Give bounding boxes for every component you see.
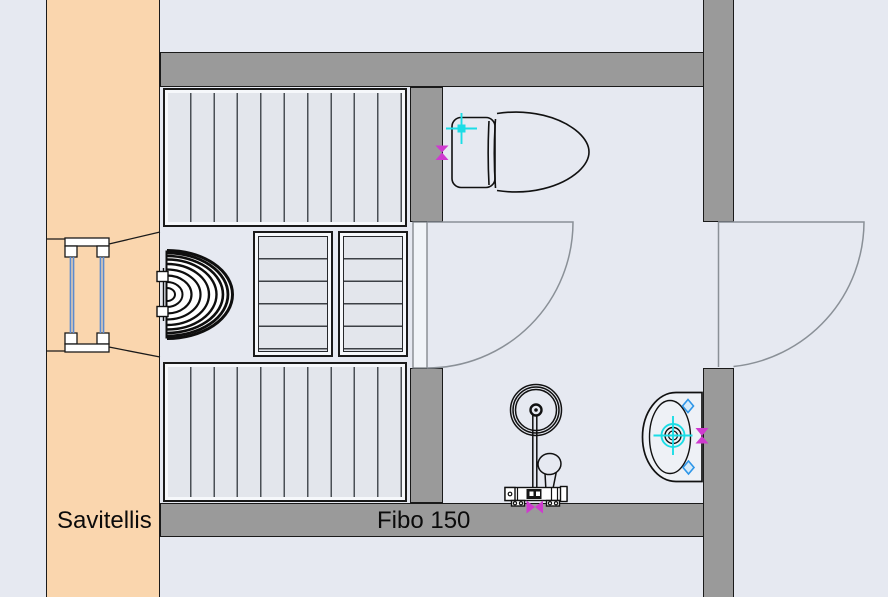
hand-shower-head: [536, 452, 562, 477]
sauna-heater[interactable]: [157, 251, 233, 339]
door-swing-arc: [718, 222, 864, 367]
shower-set[interactable]: [505, 385, 567, 507]
floor-plan-canvas[interactable]: Savitellis Fibo 150: [0, 0, 888, 597]
shower-rail: [533, 416, 537, 490]
door-swing-arc: [427, 222, 573, 368]
toilet[interactable]: [452, 112, 589, 192]
window-glazing: [71, 257, 104, 333]
door-sauna[interactable]: [413, 222, 573, 368]
snap-marker-x-shower[interactable]: [527, 501, 544, 514]
label-left-wall-material[interactable]: Savitellis: [57, 507, 152, 535]
label-bottom-wall-material[interactable]: Fibo 150: [377, 507, 470, 535]
window[interactable]: [46, 232, 160, 357]
snap-marker-x-toilet[interactable]: [436, 146, 449, 161]
door-entry[interactable]: [718, 222, 864, 367]
door-leaf: [413, 222, 427, 368]
